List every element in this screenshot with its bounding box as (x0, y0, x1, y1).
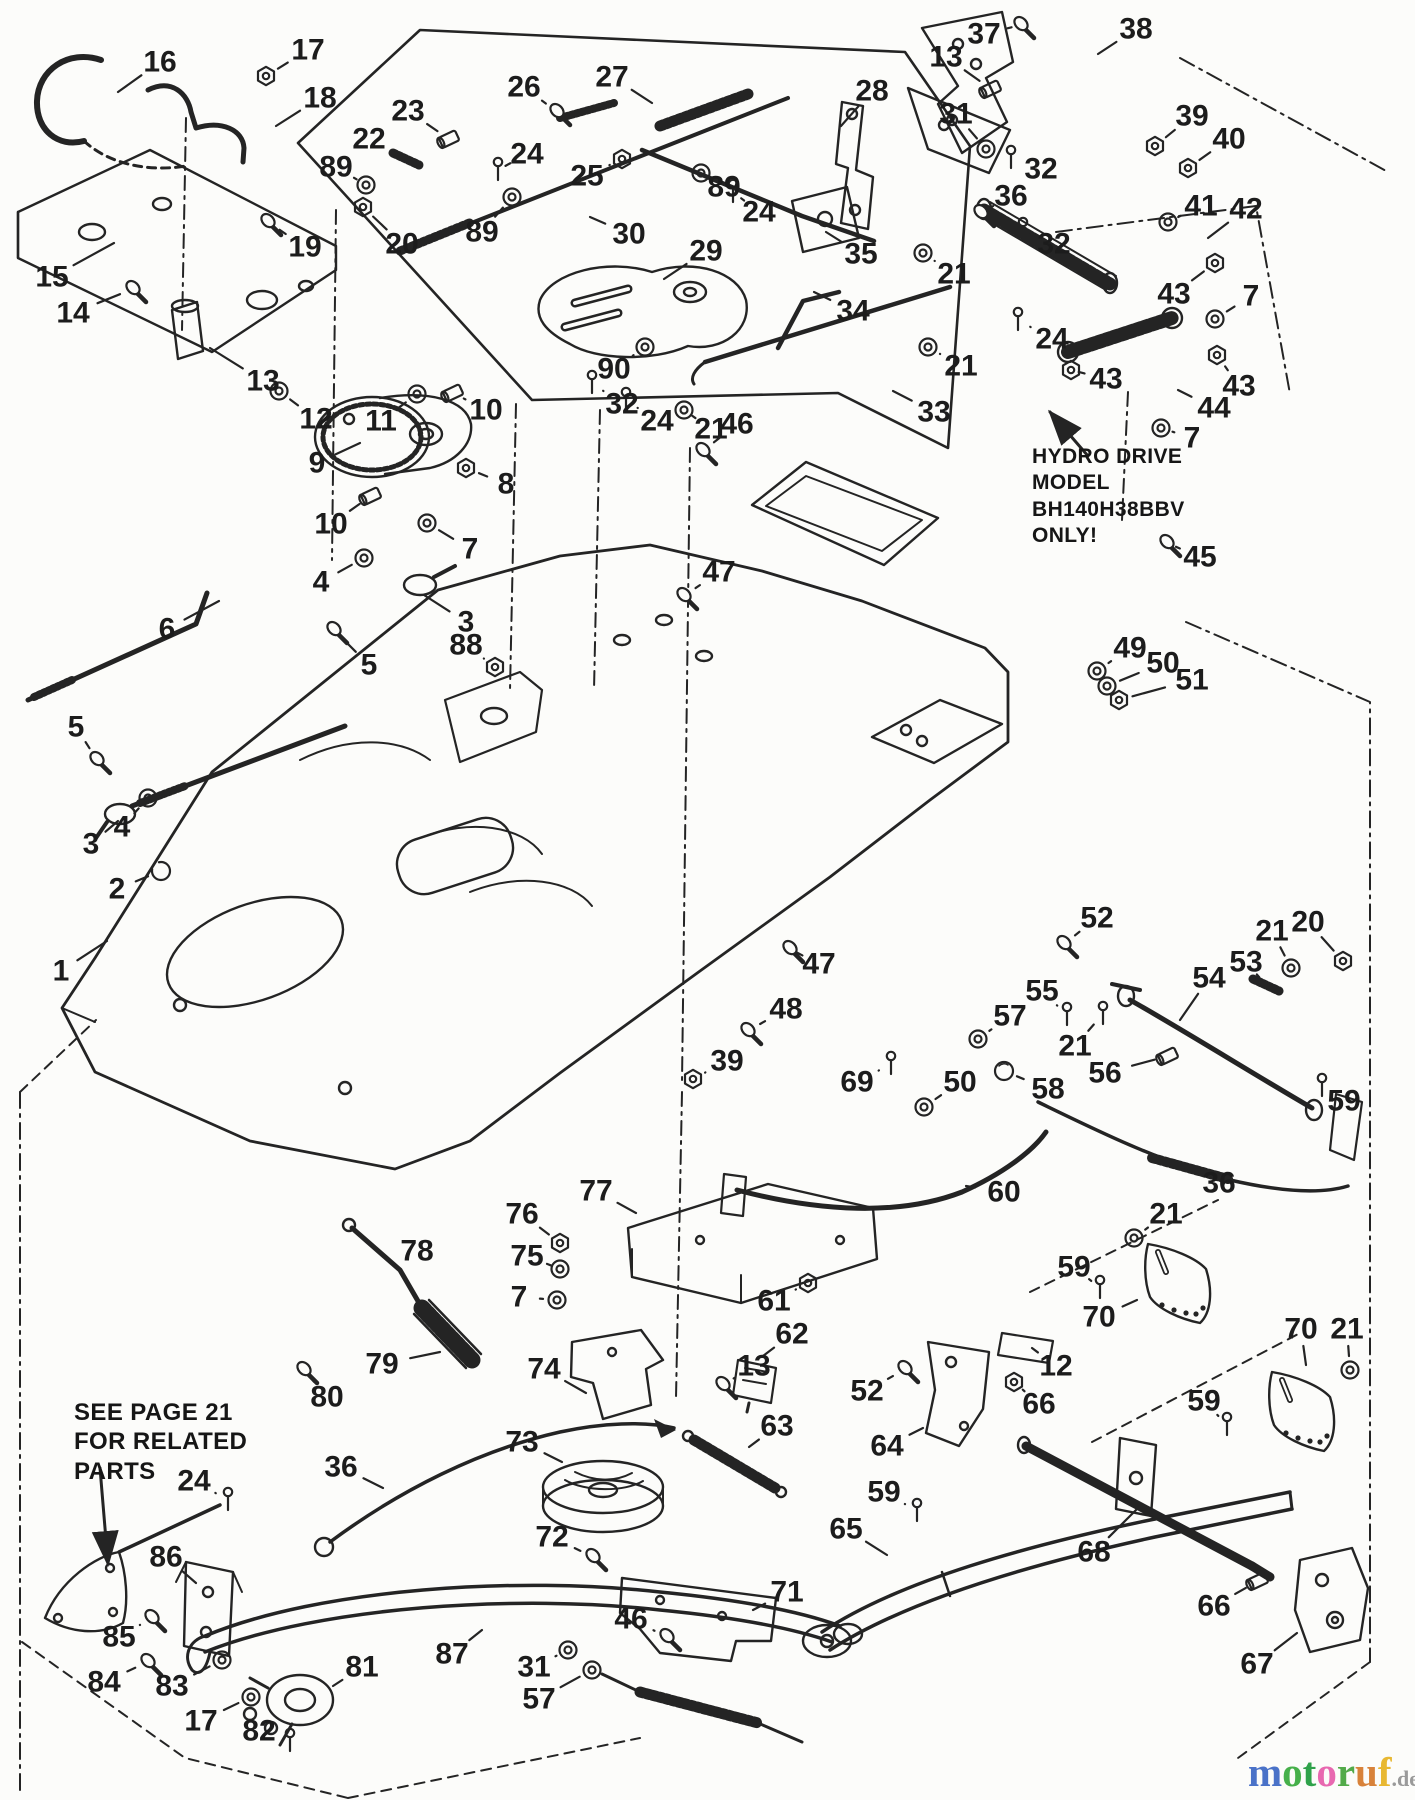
part-number-label: 80 (310, 1381, 343, 1414)
washer-glyph (1099, 678, 1116, 695)
leader-line (86, 742, 90, 748)
part-number-label: 10 (314, 508, 347, 541)
part-number-label: 14 (56, 297, 90, 330)
part-number-label: 38 (1119, 13, 1152, 46)
leader-line (561, 1677, 580, 1687)
ball-glyph (995, 1062, 1013, 1080)
part-number-label: 26 (507, 71, 540, 104)
part-number-label: 7 (462, 533, 479, 566)
cyl-glyph (1245, 1572, 1269, 1591)
leader-line (410, 1352, 440, 1358)
leader-line (749, 1440, 759, 1447)
pin-glyph (1099, 1002, 1107, 1024)
leader-line (1133, 687, 1165, 696)
cyl-glyph (358, 487, 382, 506)
washer-glyph (1160, 214, 1177, 231)
bolt-glyph (675, 585, 697, 609)
part-number-label: 89 (707, 171, 740, 204)
nut-glyph (1006, 1373, 1022, 1391)
part-number-label: 81 (345, 1651, 378, 1684)
part-number-label: 6 (159, 613, 176, 646)
nut-glyph (1063, 361, 1079, 379)
part-number-label: 39 (1175, 100, 1208, 133)
part-number-label: 31 (939, 98, 972, 131)
part-number-label: 36 (994, 180, 1027, 213)
leader-line (575, 1548, 581, 1551)
leader-line (464, 399, 466, 400)
leader-line (590, 217, 605, 224)
part-number-label: 13 (246, 365, 279, 398)
part-number-label: 27 (595, 61, 628, 94)
bolt-glyph (781, 938, 803, 962)
watermark-letter: o (1282, 1749, 1303, 1795)
part-number-label: 58 (1031, 1073, 1064, 1106)
main-frame (62, 462, 1008, 1169)
bolt-glyph (124, 278, 146, 302)
see-page-note: SEE PAGE 21 FOR RELATED PARTS (74, 1398, 247, 1486)
part-number-label: 43 (1089, 363, 1122, 396)
part-number-label: 35 (844, 238, 877, 271)
leader-line (338, 565, 351, 573)
nut-glyph (487, 658, 503, 676)
leader-line (893, 391, 912, 401)
leader-line (1108, 661, 1111, 663)
leader-line (1178, 216, 1180, 217)
leader-line (1079, 372, 1085, 374)
part-number-label: 5 (361, 649, 378, 682)
spring-glyph (393, 153, 419, 165)
part-number-label: 84 (87, 1666, 121, 1699)
part-number-label: 18 (303, 82, 336, 115)
leader-line (354, 178, 357, 180)
part-number-label: 76 (505, 1198, 538, 1231)
cyl-glyph (1155, 1047, 1179, 1066)
leader-line (565, 1381, 586, 1393)
part-number-label: 89 (319, 151, 352, 184)
leader-line (1192, 271, 1204, 280)
bolt-glyph (1012, 14, 1034, 38)
part-number-label: 52 (850, 1375, 883, 1408)
leader-line (276, 111, 300, 126)
leader-line (1235, 1588, 1246, 1594)
leader-line (1166, 130, 1175, 137)
part-number-label: 57 (993, 1000, 1026, 1033)
washer-glyph (915, 245, 932, 262)
leader-line (1303, 1346, 1306, 1365)
part-number-label: 60 (987, 1176, 1020, 1209)
part-number-label: 59 (1187, 1385, 1220, 1418)
leader-line (1322, 937, 1334, 950)
spring-glyph (1253, 979, 1279, 991)
part-number-label: 17 (184, 1705, 217, 1738)
leader-line (1075, 932, 1079, 936)
nut-glyph (1111, 691, 1127, 709)
part-number-label: 65 (829, 1513, 862, 1546)
part-number-label: 44 (1197, 392, 1231, 425)
leader-line (77, 941, 107, 960)
part-number-label: 25 (570, 160, 603, 193)
part-number-label: 43 (1157, 278, 1190, 311)
watermark-letter: r (1337, 1749, 1355, 1795)
part-number-label: 22 (352, 123, 385, 156)
leader-line (888, 1376, 893, 1379)
part-number-label: 66 (1022, 1388, 1055, 1421)
part-number-label: 86 (149, 1541, 182, 1574)
part-number-label: 79 (365, 1348, 398, 1381)
nut-glyph (1180, 159, 1196, 177)
part-number-label: 39 (710, 1045, 743, 1078)
leader-line (391, 151, 394, 153)
part-number-label: 89 (465, 216, 498, 249)
part-number-label: 24 (742, 196, 776, 229)
part-number-label: 67 (1240, 1648, 1273, 1681)
part-number-label: 32 (605, 388, 638, 421)
pin-glyph (1063, 1003, 1071, 1025)
part-number-label: 3 (83, 828, 100, 861)
leader-line (760, 1021, 765, 1024)
bolt-glyph (714, 1374, 736, 1398)
part-number-label: 49 (1113, 632, 1146, 665)
leader-line (696, 585, 700, 588)
leader-line (544, 1453, 562, 1462)
washer-glyph (549, 1292, 566, 1309)
bolt-glyph (739, 1020, 761, 1044)
part-number-label: 17 (291, 34, 324, 67)
part-number-label: 69 (840, 1066, 873, 1099)
leader-line (1208, 223, 1228, 238)
bolt-glyph (658, 1626, 680, 1650)
leader-line (118, 75, 141, 92)
part-number-label: 46 (614, 1603, 647, 1636)
leader-line (1348, 1346, 1349, 1356)
part-number-label: 82 (242, 1715, 275, 1748)
part-number-label: 12 (1039, 1350, 1072, 1383)
part-number-label: 20 (385, 228, 418, 261)
watermark-tld: .de (1391, 1766, 1415, 1791)
part-number-label: 70 (1284, 1313, 1317, 1346)
leader-line (555, 1656, 556, 1657)
leader-line (1032, 1348, 1038, 1352)
pin-glyph (1096, 1276, 1104, 1298)
part-number-label: 77 (579, 1175, 612, 1208)
left-assembly-parts (18, 57, 471, 838)
part-number-label: 21 (1330, 1313, 1363, 1346)
part-number-label: 37 (967, 18, 1000, 51)
part-number-label: 32 (1037, 228, 1070, 261)
washer-glyph (358, 177, 375, 194)
pin-glyph (1318, 1074, 1326, 1096)
part-number-label: 83 (155, 1670, 188, 1703)
bolt-glyph (584, 1546, 606, 1570)
part-number-label: 21 (1058, 1030, 1091, 1063)
part-number-label: 13 (929, 41, 962, 74)
washer-glyph (1153, 420, 1170, 437)
leader-line (224, 1703, 238, 1710)
part-number-label: 68 (1077, 1536, 1110, 1569)
part-number-label: 4 (114, 811, 131, 844)
part-number-label: 7 (1243, 280, 1260, 313)
part-number-label: 2 (109, 873, 126, 906)
leader-line (194, 1666, 209, 1674)
washer-glyph (552, 1261, 569, 1278)
part-number-label: 56 (1088, 1057, 1121, 1090)
cyl-glyph (978, 80, 1002, 99)
leader-line (547, 1264, 552, 1266)
leader-line (350, 504, 360, 511)
part-number-label: 63 (760, 1410, 793, 1443)
exploded-parts-diagram-page: 1617181915141312111098107436554321232289… (0, 0, 1415, 1800)
part-number-label: 46 (720, 408, 753, 441)
part-number-label: 7 (1184, 422, 1201, 455)
leader-line (1172, 432, 1174, 433)
washer-glyph (1089, 663, 1106, 680)
leader-line (424, 595, 450, 611)
part-number-label: 33 (917, 396, 950, 429)
part-number-label: 54 (1192, 962, 1226, 995)
part-number-label: 21 (1149, 1198, 1182, 1231)
part-number-label: 7 (511, 1281, 528, 1314)
bolt-glyph (295, 1359, 317, 1383)
part-number-label: 42 (1229, 193, 1262, 226)
nut-glyph (1209, 346, 1225, 364)
part-number-label: 10 (469, 394, 502, 427)
part-number-label: 24 (510, 138, 544, 171)
part-number-label: 52 (1080, 902, 1113, 935)
nut-glyph (685, 1070, 701, 1088)
leader-line (1275, 1633, 1297, 1650)
washer-glyph (356, 550, 373, 567)
leader-line (1199, 152, 1210, 160)
watermark-letter: o (1316, 1749, 1337, 1795)
part-number-label: 9 (309, 447, 326, 480)
part-number-label: 50 (943, 1066, 976, 1099)
pin-glyph (887, 1052, 895, 1074)
hydro-drive-note: HYDRO DRIVE MODEL BH140H38BBV ONLY! (1032, 444, 1185, 549)
bolt-glyph (143, 1607, 165, 1631)
part-number-label: 5 (68, 711, 85, 744)
leader-line (1180, 994, 1198, 1020)
part-number-label: 55 (1025, 975, 1058, 1008)
watermark-word: motoruf (1248, 1749, 1391, 1795)
part-number-label: 61 (757, 1285, 790, 1318)
leader-line (540, 1228, 549, 1235)
part-number-label: 75 (510, 1240, 543, 1273)
leader-line (1123, 1300, 1137, 1306)
leader-line (734, 1378, 735, 1379)
washer-glyph (637, 339, 654, 356)
part-number-label: 73 (505, 1426, 538, 1459)
leader-line (866, 1542, 887, 1555)
leader-line (542, 101, 546, 104)
watermark-letter: t (1303, 1749, 1317, 1795)
leader-line (633, 355, 634, 356)
part-number-label: 66 (1197, 1590, 1230, 1623)
part-number-label: 51 (1175, 664, 1208, 697)
nut-glyph (1335, 952, 1351, 970)
nut-glyph (458, 459, 474, 477)
leader-line (1098, 42, 1116, 54)
leader-line (439, 530, 453, 539)
leader-line (127, 1668, 135, 1672)
leader-line (618, 1203, 636, 1213)
leader-line (469, 1630, 482, 1640)
washer-glyph (916, 1099, 933, 1116)
part-number-label: 48 (769, 993, 802, 1026)
leader-line (1145, 1228, 1148, 1230)
washer-glyph (419, 515, 436, 532)
leader-line (632, 90, 652, 103)
washer-glyph (504, 189, 521, 206)
part-number-label: 36 (324, 1451, 357, 1484)
leader-line (290, 399, 298, 405)
note-arrows (100, 412, 1088, 1564)
part-number-label: 62 (775, 1318, 808, 1351)
leader-line (969, 129, 977, 138)
pin-glyph (1007, 146, 1015, 168)
bolt-glyph (896, 1358, 918, 1382)
part-number-label: 1 (53, 955, 70, 988)
pin-glyph (913, 1499, 921, 1521)
leader-line (278, 63, 288, 69)
washer-glyph (584, 1662, 601, 1679)
cyl-glyph (436, 130, 460, 149)
washer-glyph (1283, 960, 1300, 977)
leader-line (909, 1428, 923, 1435)
bolt-glyph (88, 749, 110, 773)
leader-line (335, 443, 360, 455)
part-number-label: 11 (365, 405, 397, 438)
part-number-label: 71 (770, 1576, 803, 1609)
part-number-label: 59 (1327, 1085, 1360, 1118)
leader-line (427, 124, 437, 131)
part-number-label: 13 (737, 1350, 770, 1383)
watermark-letter: m (1248, 1749, 1282, 1795)
part-number-label: 53 (1229, 946, 1262, 979)
pin-glyph (1223, 1413, 1231, 1435)
leader-line (479, 473, 487, 476)
part-number-label: 23 (391, 95, 424, 128)
part-number-label: 47 (802, 948, 835, 981)
pin-glyph (224, 1488, 232, 1510)
part-number-label: 74 (527, 1353, 561, 1386)
part-number-label: 21 (937, 258, 970, 291)
part-number-label: 41 (1184, 190, 1217, 223)
part-number-label: 72 (535, 1521, 568, 1554)
washer-glyph (970, 1031, 987, 1048)
pin-glyph (494, 158, 502, 180)
leader-line (363, 1478, 383, 1488)
part-number-label: 40 (1212, 123, 1245, 156)
leader-line (1178, 390, 1192, 397)
part-number-label: 12 (299, 403, 332, 436)
part-number-label: 4 (313, 566, 330, 599)
part-number-label: 20 (1291, 906, 1324, 939)
nut-glyph (1207, 254, 1223, 272)
pin-glyph (1014, 308, 1022, 330)
part-number-label: 16 (143, 46, 176, 79)
callout-layer: 1617181915141312111098107436554321232289… (35, 13, 1363, 1748)
pin-glyph (588, 371, 596, 393)
leader-line (935, 1095, 941, 1099)
leader-line (966, 1186, 975, 1187)
part-number-label: 47 (702, 556, 735, 589)
washer-glyph (676, 402, 693, 419)
nut-glyph (1147, 137, 1163, 155)
bolt-glyph (1055, 933, 1077, 957)
part-number-label: 29 (689, 235, 722, 268)
washer-glyph (920, 339, 937, 356)
washer-glyph (1207, 311, 1224, 328)
washer-glyph (1342, 1362, 1359, 1379)
part-number-label: 90 (597, 353, 630, 386)
part-number-label: 21 (944, 350, 977, 383)
part-number-label: 57 (522, 1683, 555, 1716)
part-number-label: 15 (35, 261, 68, 294)
washer-glyph (978, 141, 995, 158)
leader-line (1017, 1076, 1024, 1079)
leader-line (1007, 27, 1011, 28)
washer-glyph (409, 386, 426, 403)
part-number-label: 45 (1183, 541, 1216, 574)
part-number-label: 88 (449, 629, 482, 662)
right-assembly-parts (721, 12, 1362, 1216)
part-number-label: 78 (400, 1235, 433, 1268)
leader-line (826, 232, 841, 241)
part-number-label: 34 (836, 295, 870, 328)
leader-line (1132, 1060, 1154, 1066)
part-number-label: 59 (867, 1476, 900, 1509)
part-number-label: 19 (288, 231, 321, 264)
part-number-label: 8 (498, 468, 515, 501)
leader-line (1120, 673, 1139, 681)
washer-glyph (243, 1689, 260, 1706)
part-number-label: 24 (1035, 323, 1069, 356)
part-number-label: 87 (435, 1638, 468, 1671)
parts-diagram-canvas: 1617181915141312111098107436554321232289… (0, 0, 1415, 1800)
part-number-label: 31 (517, 1651, 550, 1684)
watermark: motoruf.de (1248, 1748, 1415, 1796)
leader-line (965, 70, 980, 81)
leader-line (1280, 947, 1284, 955)
watermark-letter: f (1378, 1749, 1392, 1795)
leader-line (210, 348, 243, 368)
leader-line (989, 1029, 991, 1030)
part-number-label: 30 (612, 218, 645, 251)
nut-glyph (552, 1234, 568, 1252)
leader-line (1227, 307, 1235, 312)
cyl-glyph (440, 384, 464, 403)
part-number-label: 24 (640, 405, 674, 438)
washer-glyph (560, 1642, 577, 1659)
leader-line (333, 1680, 342, 1686)
watermark-letter: u (1355, 1749, 1378, 1795)
leader-line (344, 640, 356, 652)
part-number-label: 21 (1255, 915, 1288, 948)
part-number-label: 36 (1202, 1167, 1235, 1200)
part-number-label: 32 (1024, 153, 1057, 186)
leader-line (74, 243, 114, 265)
part-number-label: 70 (1082, 1301, 1115, 1334)
part-number-label: 85 (102, 1621, 135, 1654)
part-number-label: 64 (870, 1430, 904, 1463)
part-number-label: 28 (855, 75, 888, 108)
nut-glyph (258, 67, 274, 85)
part-number-label: 59 (1057, 1251, 1090, 1284)
